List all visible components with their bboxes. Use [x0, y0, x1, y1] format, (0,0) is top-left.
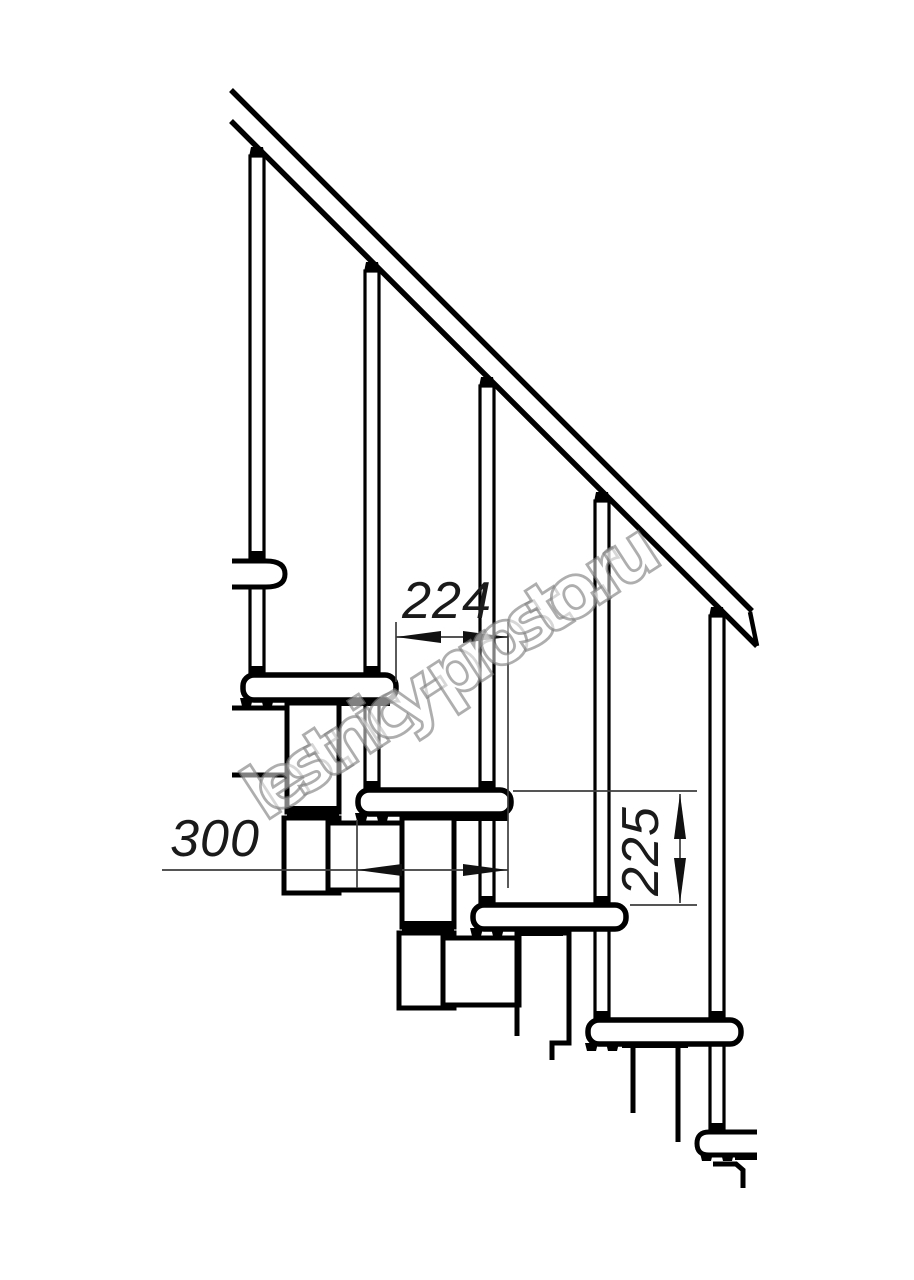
rail-cap-4: [594, 492, 610, 502]
staircase-drawing: 224 300 225 lestnicy-prosto.ru: [0, 0, 914, 1280]
step2-riser-module: [402, 818, 454, 927]
step4-riser-module-cut: [633, 1048, 678, 1142]
rail-cap-3: [479, 377, 495, 387]
rail-cap-2: [364, 262, 380, 272]
step3-riser-module-cut: [517, 933, 569, 1060]
arrow-225-down: [674, 858, 686, 903]
rail-cap-1: [249, 147, 265, 157]
cap-t5-b5: [708, 1123, 726, 1134]
technical-drawing-page: 224 300 225 lestnicy-prosto.ru: [0, 0, 914, 1280]
step5-cut-lines: [713, 1164, 743, 1188]
baluster-1: [250, 156, 264, 680]
arrow-225-up: [674, 794, 686, 839]
cap-t2-b2: [363, 781, 381, 792]
cap-t3-b4: [593, 896, 611, 907]
cap-t4-b4: [593, 1011, 611, 1022]
tread-5-partial: [697, 1132, 757, 1155]
baluster-5: [710, 616, 724, 1137]
step1-horizontal-module: [328, 823, 404, 890]
step2-horizontal-module: [443, 938, 519, 1005]
tread-2: [358, 790, 511, 814]
tread-4: [588, 1020, 741, 1044]
cap-t1-b1: [248, 666, 266, 677]
cap-t3-b3: [478, 896, 496, 907]
tread-0-partial: [232, 561, 285, 587]
dim-label-step-height: 225: [612, 806, 670, 897]
dim-label-tread-depth: 300: [170, 810, 260, 868]
rail-cap-5: [709, 607, 725, 617]
cap-t2-b3: [478, 781, 496, 792]
cap-collar-b1: [248, 551, 266, 562]
tread-3: [473, 905, 626, 929]
cap-t4-b5: [708, 1011, 726, 1022]
